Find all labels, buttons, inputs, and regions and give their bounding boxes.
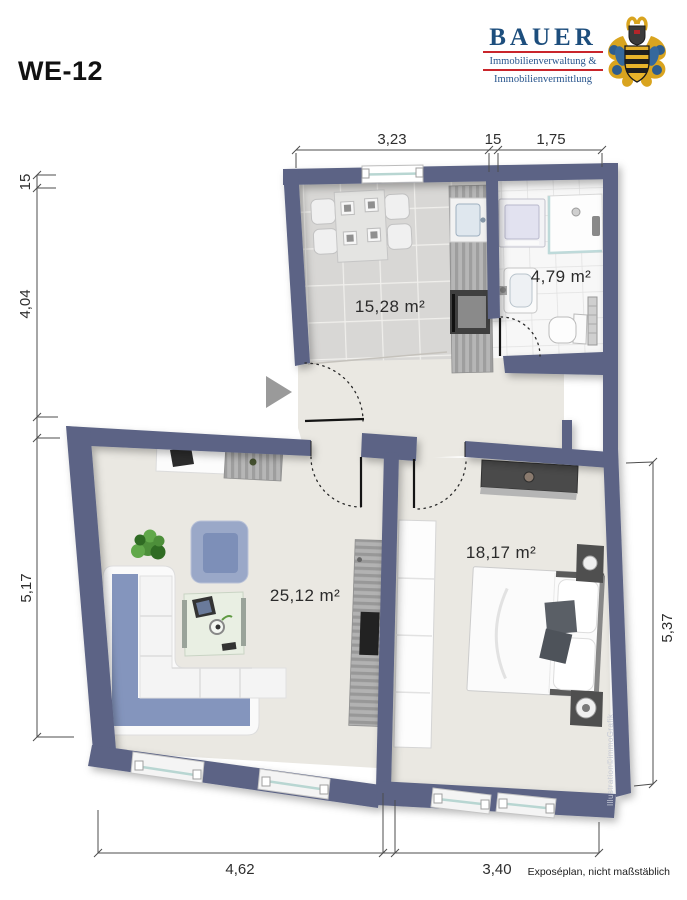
tv bbox=[359, 612, 379, 656]
wall-upper-right bbox=[603, 163, 618, 451]
chair bbox=[387, 223, 412, 249]
dim-left-2: 4,04 bbox=[17, 289, 34, 318]
chair bbox=[313, 228, 338, 254]
dim-top-2: 15 bbox=[485, 131, 502, 148]
chair bbox=[384, 194, 409, 220]
stove bbox=[450, 290, 490, 334]
kitchen-area-label: 15,28 m² bbox=[355, 297, 425, 316]
living-window-2 bbox=[258, 769, 330, 799]
dining-table bbox=[334, 190, 388, 263]
dim-bottom-1: 4,62 bbox=[225, 861, 254, 878]
shower bbox=[548, 194, 603, 254]
kitchen-sink bbox=[450, 198, 488, 242]
dim-left-1: 15 bbox=[17, 174, 34, 191]
living-area-label: 25,12 m² bbox=[270, 586, 340, 605]
nightstand-bottom bbox=[570, 690, 603, 727]
toilet bbox=[549, 314, 587, 344]
dim-right-1: 5,37 bbox=[659, 613, 676, 642]
floorplan-page: WE-12 BAUER Immobilienverwaltung & Immob… bbox=[0, 0, 687, 900]
wardrobe bbox=[394, 520, 436, 748]
washing-machine bbox=[499, 199, 545, 247]
wall-kitchen-bath bbox=[486, 180, 500, 319]
coffee-table bbox=[182, 592, 246, 656]
dim-top-1: 3,23 bbox=[377, 131, 406, 148]
armchair bbox=[191, 521, 248, 583]
radiator bbox=[588, 297, 597, 345]
wall-notch-nib bbox=[562, 420, 572, 452]
floor-plan: 3,23 15 1,75 15 4,04 5,17 5,37 4,62 3,40… bbox=[0, 0, 687, 900]
scale-disclaimer: Exposéplan, nicht maßstäblich bbox=[528, 866, 670, 878]
dim-left-3: 5,17 bbox=[18, 573, 35, 602]
bedroom-area-label: 18,17 m² bbox=[466, 543, 536, 562]
entrance-arrow-icon bbox=[266, 376, 292, 408]
chair bbox=[311, 198, 336, 224]
kitchen-window bbox=[362, 165, 423, 183]
wall-bath-bottom bbox=[503, 352, 603, 375]
dresser bbox=[480, 460, 578, 500]
nightstand-top bbox=[576, 544, 604, 583]
bed bbox=[467, 567, 605, 698]
dim-top-3: 1,75 bbox=[536, 131, 565, 148]
bathroom-area-label: 4,79 m² bbox=[531, 267, 591, 286]
dim-bottom-2: 3,40 bbox=[482, 861, 511, 878]
illustrator-watermark: Illustration©immoGrafik bbox=[606, 713, 615, 806]
